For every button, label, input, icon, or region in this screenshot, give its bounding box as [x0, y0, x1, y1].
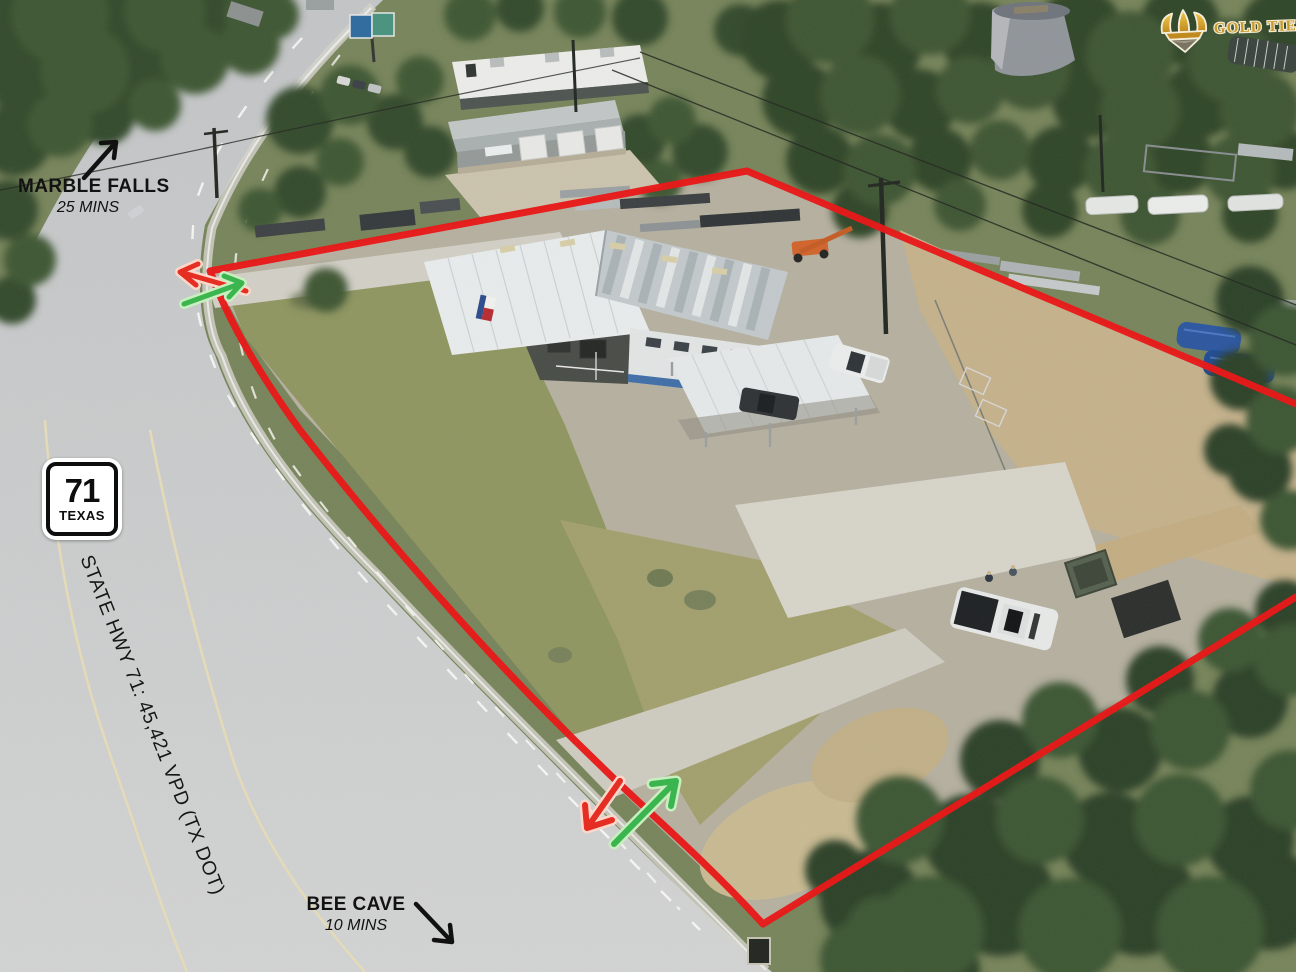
gold-tier-badge: GOLD TIER	[1154, 6, 1296, 54]
bee-cave-label: BEE CAVE 10 MINS	[296, 894, 416, 935]
highway-71-shield: 71 TEXAS	[42, 458, 122, 540]
direction-arrow-southeast-icon	[406, 896, 464, 954]
bee-cave-name: BEE CAVE	[296, 894, 416, 916]
badge-label: GOLD TIER	[1214, 18, 1296, 37]
marble-falls-time: 25 MINS	[18, 199, 158, 217]
direction-arrow-northwest-icon	[76, 130, 132, 184]
crown-icon	[1161, 9, 1208, 53]
route-state: TEXAS	[59, 508, 105, 523]
aerial-photo-stage: MARBLE FALLS 25 MINS 71 TEXAS STATE HWY …	[0, 0, 1296, 972]
route-number: 71	[65, 475, 100, 506]
bee-cave-time: 10 MINS	[296, 917, 416, 935]
